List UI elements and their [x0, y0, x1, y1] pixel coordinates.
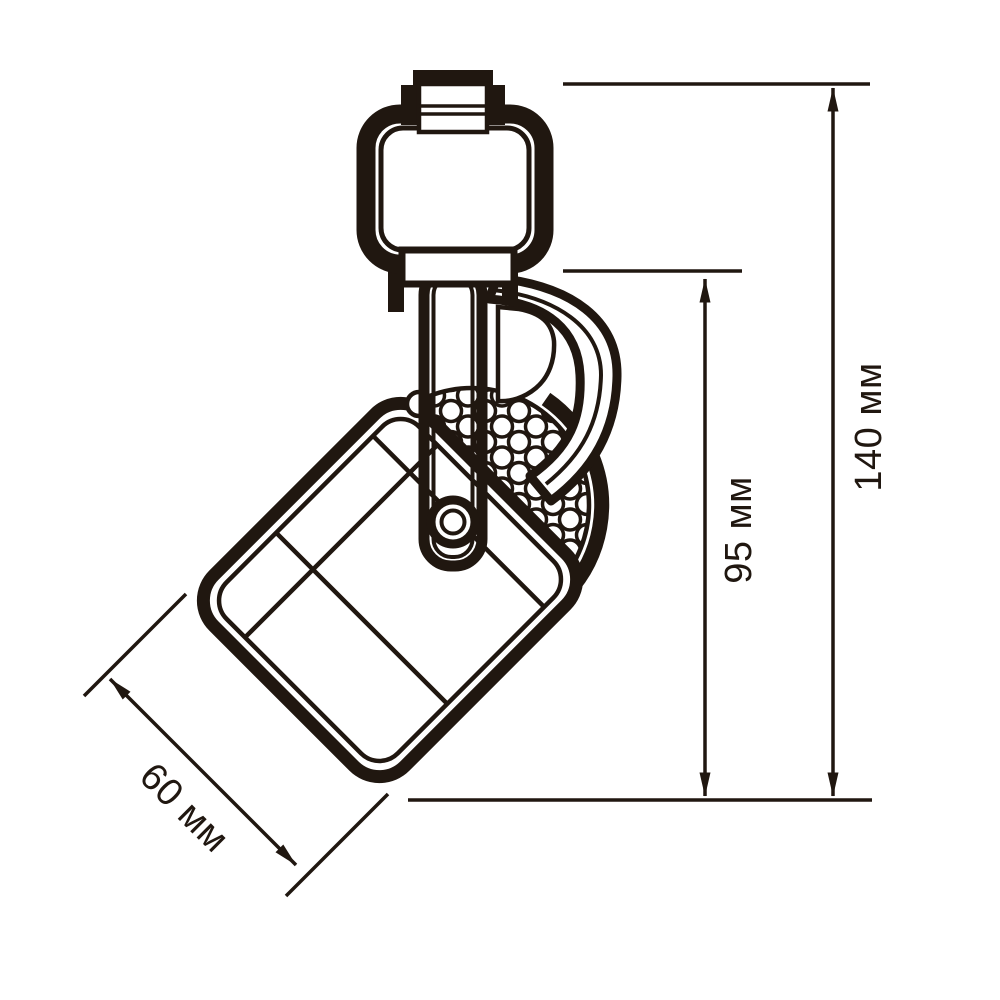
- pivot-screw-inner: [442, 511, 465, 534]
- adapter-neck: [402, 250, 514, 284]
- drawing-canvas: 140 мм 95 мм 60 мм: [0, 0, 1000, 1000]
- spotlight-fixture: [188, 70, 617, 792]
- track-tab-contact: [419, 84, 487, 132]
- adapter-body: [366, 114, 544, 264]
- dimension-label-95mm: 95 мм: [718, 476, 760, 584]
- extension-line-60mm-upper: [84, 594, 186, 696]
- adapter-inner-outline: [381, 128, 529, 250]
- extension-line-60mm-lower: [286, 794, 388, 896]
- fixture-dimension-drawing: 140 мм 95 мм 60 мм: [0, 0, 1000, 1000]
- dimension-label-60mm: 60 мм: [131, 755, 237, 861]
- dimension-label-140mm: 140 мм: [848, 362, 890, 491]
- handle-opening: [498, 307, 554, 401]
- track-adapter: [366, 70, 544, 312]
